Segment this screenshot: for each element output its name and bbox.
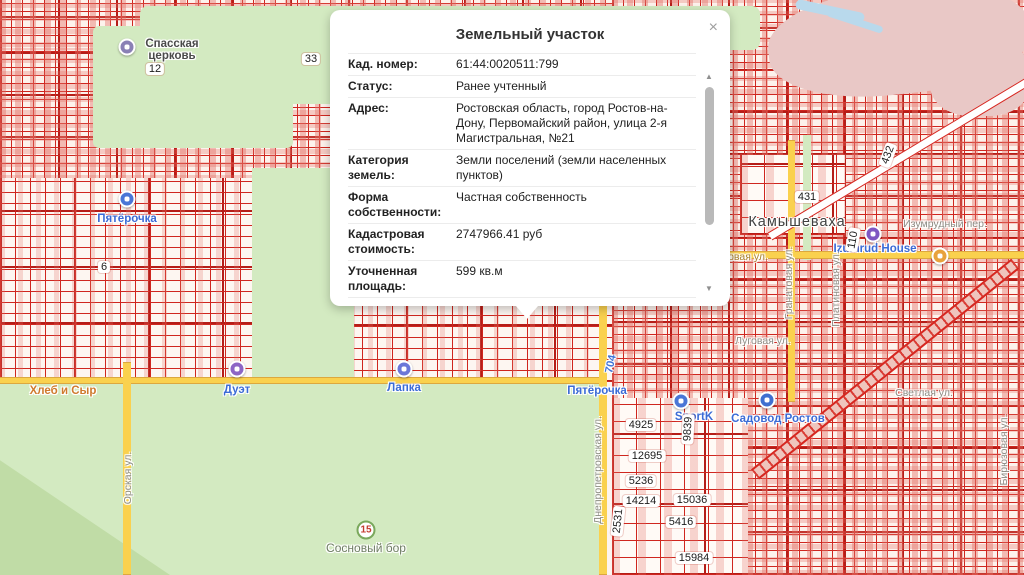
duet-icon[interactable] — [229, 361, 246, 378]
cadastral-map-app: Спасская церковь1233Пятёрочка6Хлеб и Сыр… — [0, 0, 1024, 575]
sportk-icon[interactable] — [673, 393, 690, 410]
popup-field-row: Уточненная площадь:599 кв.м — [348, 261, 696, 298]
road-number-704: 704 — [603, 354, 619, 374]
quarter-number-2531: 2531 — [610, 505, 625, 537]
izumrud-house-icon[interactable] — [865, 226, 882, 243]
field-value: 599 кв.м — [456, 264, 696, 294]
pyaterochka-icon[interactable] — [119, 191, 136, 208]
quarter-number-9839: 9839 — [681, 413, 695, 444]
lapka-icon[interactable] — [396, 361, 413, 378]
field-label: Адрес: — [348, 101, 456, 146]
field-value: 2747966.41 руб — [456, 227, 696, 257]
poi-label-hleb-i-syr[interactable]: Хлеб и Сыр — [30, 385, 97, 397]
popup-scrollbar[interactable]: ▲ ▼ — [703, 72, 715, 294]
popup-field-row: Статус:Ранее учтенный — [348, 76, 696, 98]
scroll-down-icon[interactable]: ▼ — [705, 284, 713, 294]
quarter-number-5236: 5236 — [626, 475, 656, 487]
locality-label-kamyshevakha: Камышеваха — [748, 214, 845, 230]
field-label: Кадастровая стоимость: — [348, 227, 456, 257]
park-label-sosnovy-bor: Сосновый бор — [326, 541, 406, 555]
quarter-number-33: 33 — [302, 53, 320, 65]
popup-tail — [516, 306, 538, 319]
quarter-number-6: 6 — [98, 261, 110, 273]
field-label: Кад. номер: — [348, 57, 456, 72]
quarter-number-4925: 4925 — [626, 419, 656, 431]
field-label: Уточненная площадь: — [348, 264, 456, 294]
quarter-number-431: 431 — [795, 191, 819, 203]
street-label-platinovaya: Платиновая ул. — [830, 251, 842, 327]
park-number-15: 15 — [357, 521, 376, 540]
field-value: 61:44:0020511:799 — [456, 57, 696, 72]
street-label-granatovaya: Гранатовая ул. — [783, 247, 795, 320]
popup-field-rows: Кад. номер:61:44:0020511:799Статус:Ранее… — [348, 53, 696, 298]
quarter-number-12695: 12695 — [629, 450, 666, 462]
street-label-orskaya: Орская ул. — [122, 452, 134, 505]
street-label-ovaya: овая ул. — [728, 251, 768, 263]
street-label-lugovaya: Луговая ул. — [735, 335, 791, 347]
street-label-izumrudny: Изумрудный пер. — [903, 218, 987, 230]
close-icon[interactable]: × — [709, 20, 718, 36]
street-label-biryuzovaya: Бирюзовая ул. — [998, 415, 1010, 486]
quarter-number-12: 12 — [146, 63, 164, 75]
street-label-svetlaya: Светлая ул. — [895, 387, 953, 399]
quarter-number-14214: 14214 — [623, 495, 660, 507]
field-value: Частная собственность — [456, 190, 696, 220]
poi-label-duet[interactable]: Дуэт — [224, 384, 250, 396]
field-label: Статус: — [348, 79, 456, 94]
field-value: Ростовская область, город Ростов-на-Дону… — [456, 101, 696, 146]
field-value: Ранее учтенный — [456, 79, 696, 94]
field-label: Форма собственности: — [348, 190, 456, 220]
popup-field-row: Адрес:Ростовская область, город Ростов-н… — [348, 98, 696, 150]
parcel-info-popup: × Земельный участок Кад. номер:61:44:002… — [330, 10, 730, 306]
transit-stop-icon[interactable] — [932, 248, 949, 265]
poi-label-pyaterochka[interactable]: Пятёрочка — [97, 213, 157, 225]
scroll-up-icon[interactable]: ▲ — [705, 72, 713, 82]
quarter-number-432: 432 — [878, 142, 898, 169]
field-label: Категория земель: — [348, 153, 456, 183]
quarter-number-15984: 15984 — [676, 552, 713, 564]
popup-field-row: Кадастровая стоимость:2747966.41 руб — [348, 224, 696, 261]
field-value: Земли поселений (земли населенных пункто… — [456, 153, 696, 183]
quarter-number-5416: 5416 — [666, 516, 696, 528]
quarter-number-15036: 15036 — [674, 494, 711, 506]
poi-label-lapka[interactable]: Лапка — [387, 382, 421, 394]
popup-field-row: Кад. номер:61:44:0020511:799 — [348, 54, 696, 76]
popup-title: Земельный участок — [370, 26, 690, 43]
popup-field-row: Форма собственности:Частная собственност… — [348, 187, 696, 224]
poi-label-spasskaya-tserkov[interactable]: Спасская церковь — [139, 38, 205, 62]
popup-field-row: Категория земель:Земли поселений (земли … — [348, 150, 696, 187]
sadovod-icon[interactable] — [759, 392, 776, 409]
street-label-dnepropetrovskaya: Днепропетровская ул. — [592, 416, 604, 524]
poi-label-pyaterochka-2[interactable]: Пятёрочка — [567, 385, 627, 397]
poi-label-sadovod-rostov[interactable]: Садовод Ростов — [731, 413, 825, 425]
church-icon[interactable] — [119, 39, 136, 56]
scroll-thumb[interactable] — [705, 87, 714, 225]
